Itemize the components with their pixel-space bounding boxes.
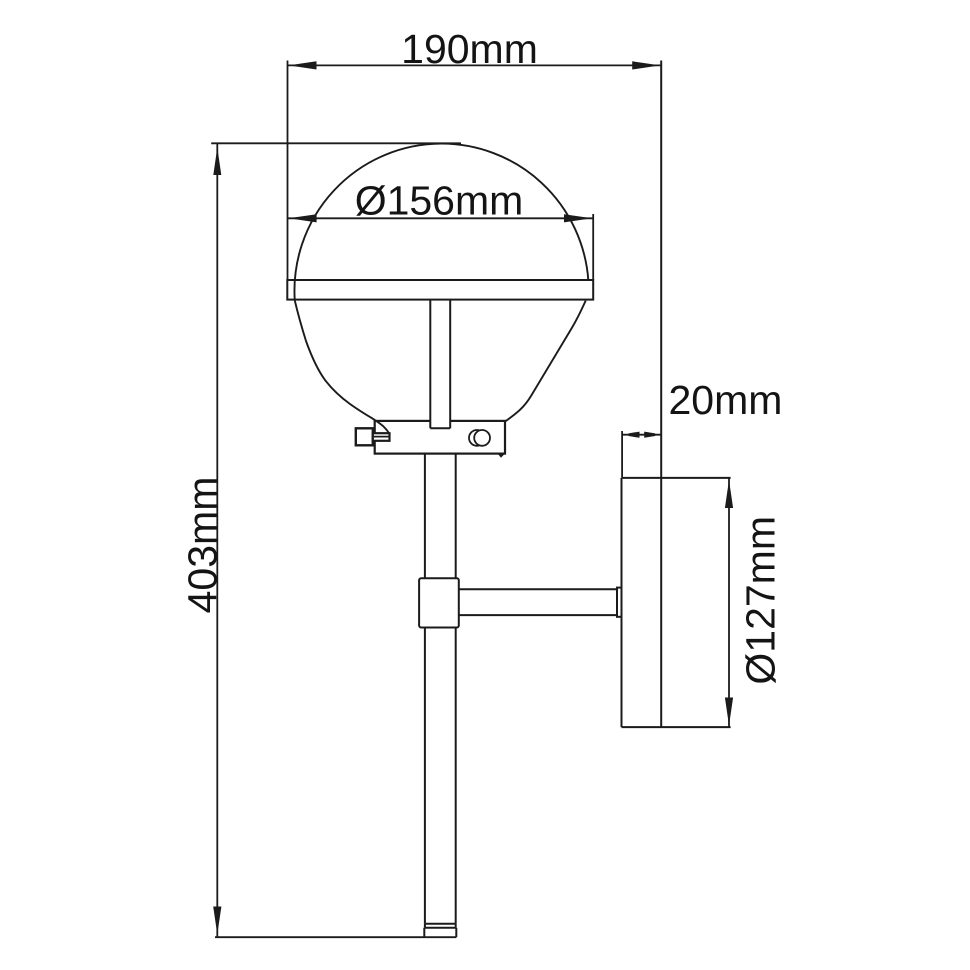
svg-text:190mm: 190mm [401,26,538,72]
svg-text:Ø156mm: Ø156mm [355,178,524,224]
svg-text:Ø127mm: Ø127mm [738,516,784,685]
svg-text:403mm: 403mm [179,477,225,614]
svg-text:20mm: 20mm [669,377,783,423]
